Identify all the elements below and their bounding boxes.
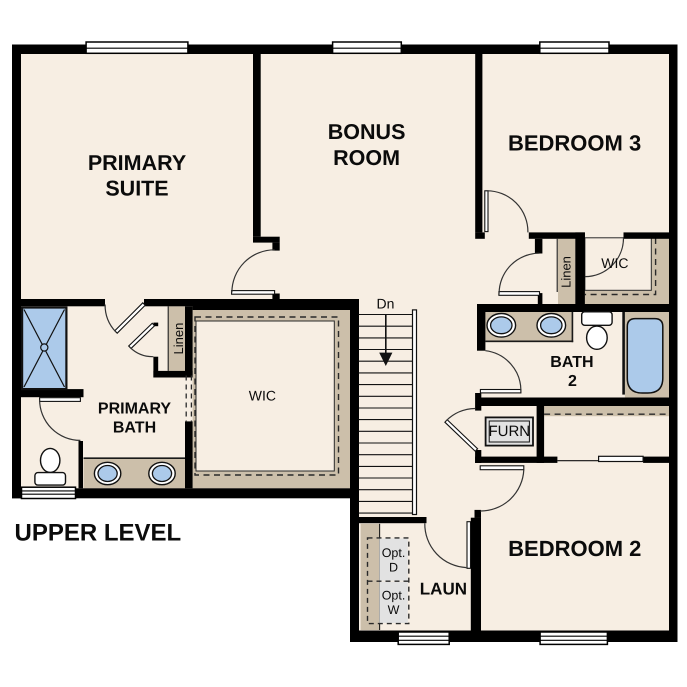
svg-text:WIC: WIC [601, 255, 628, 271]
svg-text:Dn: Dn [377, 296, 395, 312]
svg-text:BATH: BATH [113, 420, 156, 437]
svg-text:D: D [389, 561, 398, 575]
svg-text:Opt.: Opt. [382, 546, 406, 560]
svg-text:LAUN: LAUN [420, 580, 467, 599]
svg-text:W: W [388, 603, 400, 617]
svg-text:BATH: BATH [550, 354, 593, 371]
svg-text:BONUS: BONUS [328, 120, 406, 144]
svg-text:SUITE: SUITE [105, 177, 168, 201]
svg-text:BEDROOM 2: BEDROOM 2 [508, 536, 641, 561]
svg-text:UPPER LEVEL: UPPER LEVEL [15, 519, 182, 546]
svg-text:ROOM: ROOM [333, 146, 400, 170]
svg-text:BEDROOM 3: BEDROOM 3 [508, 130, 641, 155]
svg-text:FURN: FURN [488, 423, 530, 440]
svg-text:2: 2 [568, 373, 577, 390]
svg-text:WIC: WIC [249, 388, 276, 404]
svg-text:Linen: Linen [171, 323, 186, 355]
svg-text:Opt.: Opt. [382, 589, 406, 603]
svg-text:PRIMARY: PRIMARY [98, 401, 172, 418]
svg-text:PRIMARY: PRIMARY [88, 151, 186, 175]
svg-text:Linen: Linen [559, 256, 574, 288]
